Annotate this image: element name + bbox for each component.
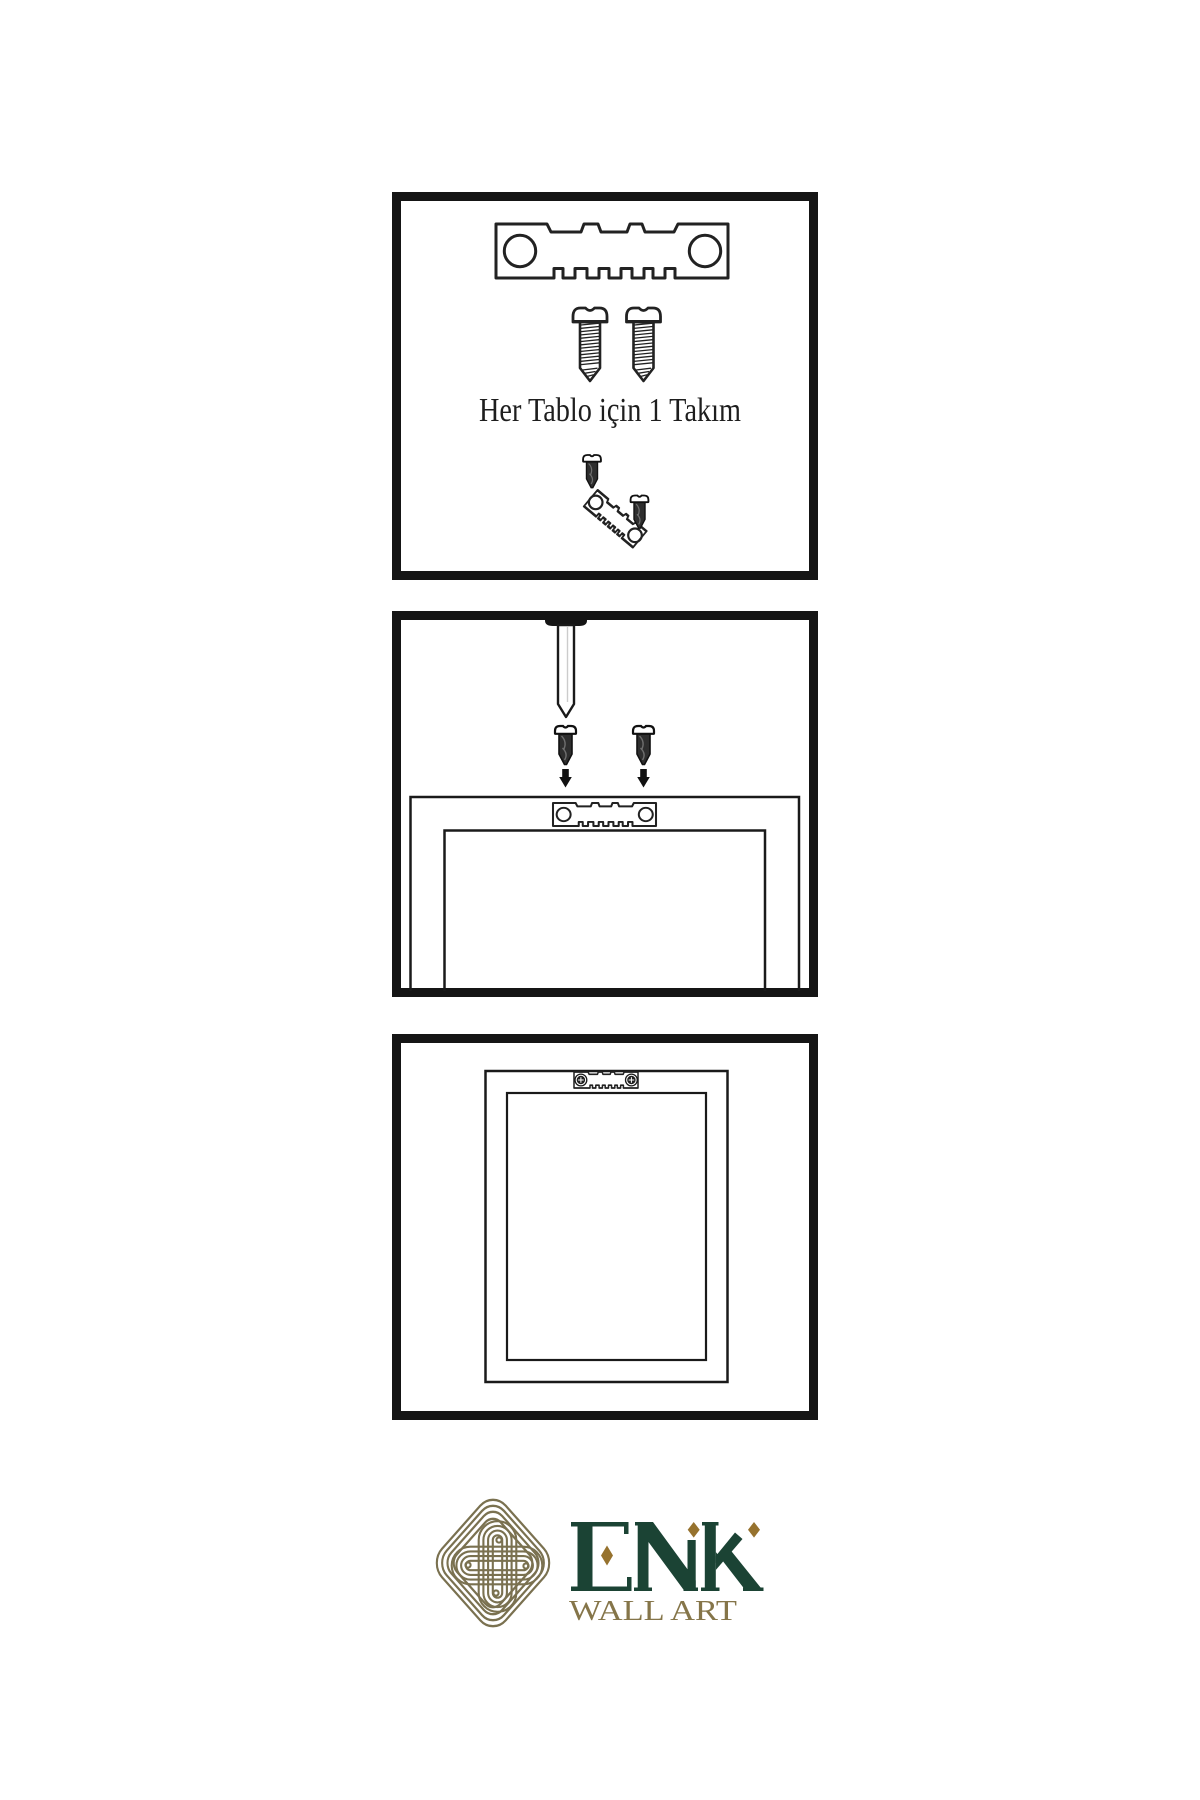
svg-text:Her Tablo için 1 Takım: Her Tablo için 1 Takım bbox=[479, 392, 741, 429]
svg-text:WALL ART: WALL ART bbox=[569, 1596, 737, 1627]
